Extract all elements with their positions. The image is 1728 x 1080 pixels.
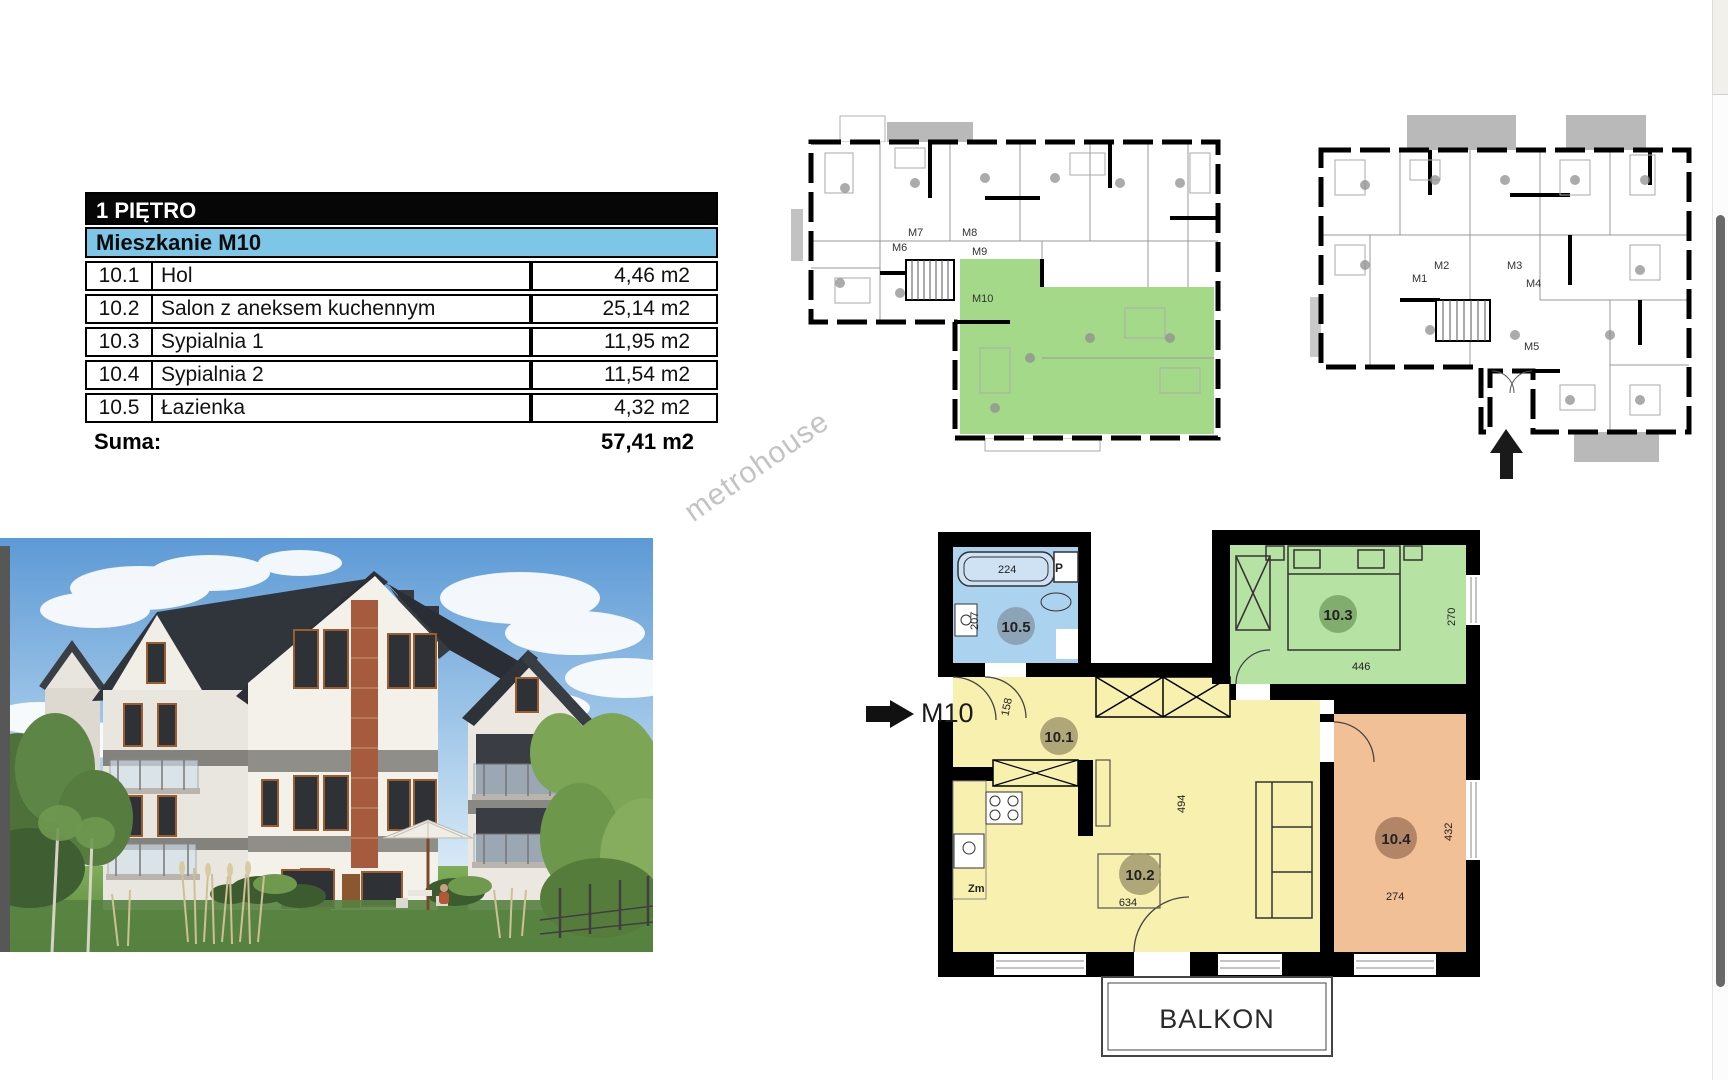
- room-label-bedroom1: 10.3: [1323, 607, 1352, 624]
- stove-icon: [986, 792, 1022, 824]
- table-row: 10.3 Sypialnia 1 11,95 m2: [85, 327, 718, 357]
- apartment-label-m4: M4: [1526, 278, 1541, 290]
- apartment-label-m9: M9: [972, 246, 987, 258]
- dim-bedroom1-height: 270: [1446, 608, 1458, 626]
- room-label-living: 10.2: [1125, 867, 1154, 884]
- table-row: 10.5 Łazienka 4,32 m2: [85, 393, 718, 423]
- room-area: 11,95 m2: [531, 327, 718, 357]
- dim-bedroom2-height: 432: [1443, 823, 1455, 841]
- rooms-table: 10.1 Hol 4,46 m2 10.2 Salon z aneksem ku…: [85, 258, 718, 426]
- room-area: 11,54 m2: [531, 360, 718, 390]
- entrance-arrow-icon: [1490, 429, 1523, 453]
- total-row: Suma: 57,41 m2: [85, 429, 718, 455]
- apartment-spec-table: 1 PIĘTRO Mieszkanie M10 10.1 Hol 4,46 m2…: [85, 192, 718, 455]
- table-row: 10.4 Sypialnia 2 11,54 m2: [85, 360, 718, 390]
- apartment-label-m7: M7: [908, 227, 923, 239]
- room-area: 4,32 m2: [531, 393, 718, 423]
- m10-entrance-marker: M10: [866, 698, 974, 729]
- total-value: 57,41 m2: [601, 429, 718, 455]
- room-code: 10.4: [85, 360, 153, 390]
- room-code: 10.3: [85, 327, 153, 357]
- table-row: 10.1 Hol 4,46 m2: [85, 261, 718, 291]
- stairs: [1436, 300, 1490, 341]
- room-label-bathroom: 10.5: [1001, 619, 1030, 636]
- right-trees: [530, 713, 653, 938]
- page: 1 PIĘTRO Mieszkanie M10 10.1 Hol 4,46 m2…: [0, 0, 1728, 1080]
- scrollbar-thumb[interactable]: [1716, 215, 1725, 987]
- kitchen-sink-icon: [954, 834, 984, 868]
- room-label-hall: 10.1: [1044, 729, 1073, 746]
- unit-header: Mieszkanie M10: [85, 227, 718, 258]
- total-label: Suma:: [85, 429, 161, 455]
- entrance-door-arcs: [1492, 371, 1532, 393]
- room-name: Sypialnia 1: [153, 327, 531, 357]
- scrollbar-top-strip: [1712, 0, 1728, 95]
- building-outline-fill: [1321, 150, 1689, 432]
- dim-bedroom2-width: 274: [1386, 891, 1404, 903]
- m10-entrance-label: M10: [921, 698, 974, 729]
- bathroom-niche: [1056, 629, 1078, 659]
- dim-living-width: 634: [1119, 897, 1137, 909]
- room-name: Hol: [153, 261, 531, 291]
- room-name: Sypialnia 2: [153, 360, 531, 390]
- apartment-label-m6: M6: [892, 242, 907, 254]
- balcony-label: BALKON: [1159, 1004, 1275, 1034]
- room-area: 25,14 m2: [531, 294, 718, 324]
- stairs: [906, 260, 954, 300]
- m10-detailed-plan: 10.5 224 207 P 10.1 158 10.2 634 494 Zm …: [938, 530, 1483, 1060]
- dim-living-height: 494: [1176, 795, 1188, 813]
- dim-bath-height: 207: [969, 612, 981, 630]
- room-name: Łazienka: [153, 393, 531, 423]
- apartment-label-m5: M5: [1524, 341, 1539, 353]
- table-row: 10.2 Salon z aneksem kuchennym 25,14 m2: [85, 294, 718, 324]
- apartment-label-m3: M3: [1507, 260, 1522, 272]
- floor-plan-ground-floor: M1 M2 M3 M4 M5: [1310, 85, 1708, 485]
- sink-label: Zm: [968, 883, 985, 895]
- room-code: 10.5: [85, 393, 153, 423]
- dim-bedroom1-width: 446: [1352, 661, 1370, 673]
- entrance-arrow-icon: [866, 700, 914, 728]
- dim-bath-width: 224: [998, 564, 1016, 576]
- room-code: 10.1: [85, 261, 153, 291]
- facade-band: [248, 750, 438, 772]
- room-name: Salon z aneksem kuchennym: [153, 294, 531, 324]
- room-code: 10.2: [85, 294, 153, 324]
- building-photo: [0, 538, 653, 952]
- entrance-arrow-stem: [1500, 453, 1513, 479]
- apartment-label-m10: M10: [972, 293, 993, 305]
- apartment-label-m1: M1: [1412, 273, 1427, 285]
- room-area: 4,46 m2: [531, 261, 718, 291]
- balcony: BALKON: [1102, 977, 1332, 1056]
- person: [440, 884, 448, 892]
- room-label-bedroom2: 10.4: [1381, 831, 1411, 848]
- apartment-label-m8: M8: [962, 227, 977, 239]
- apartment-label-m2: M2: [1434, 260, 1449, 272]
- floor-header: 1 PIĘTRO: [85, 192, 718, 225]
- photo-left-edge-strip: [0, 546, 10, 952]
- washer-label: P: [1055, 561, 1063, 575]
